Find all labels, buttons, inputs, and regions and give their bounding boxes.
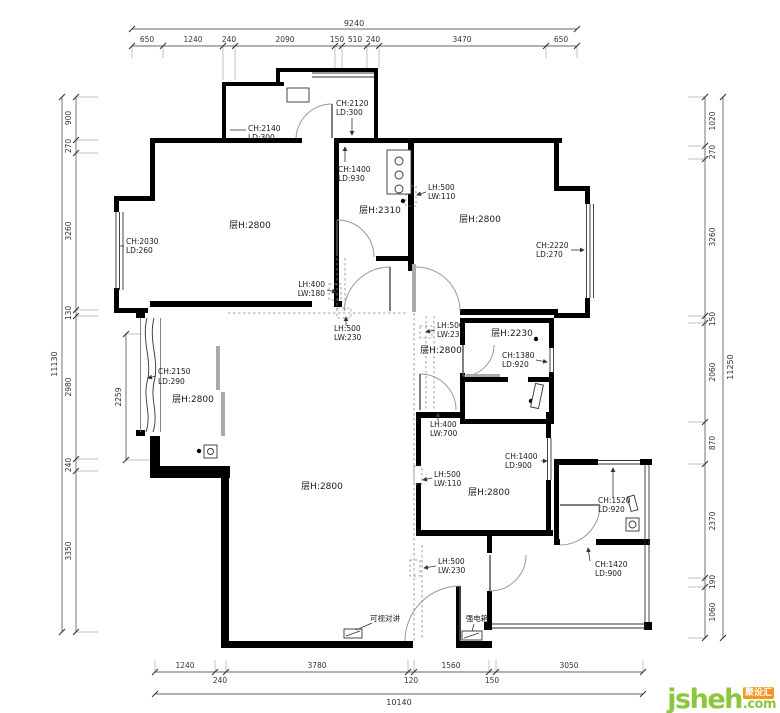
dash-opening [414,466,422,484]
dash-opening [410,560,420,576]
bay-window-wavy [152,318,155,432]
leader [356,623,372,630]
wall [460,318,554,323]
dim: 190 [708,575,717,590]
balcony-window-bottom [492,624,646,628]
sliding-door-panel [216,346,220,390]
wall [416,412,464,418]
room-label-kitchen: 层H:2310 [359,205,401,216]
dim: 3260 [708,227,717,246]
label-line: CH:2140 [248,124,281,133]
label-storage-win: CH:1520 LD:920 [598,496,631,514]
kitchen-door-arc [337,220,374,257]
bath-window [550,348,554,374]
label-line: LD:900 [505,461,532,470]
label-line: LH:400 [298,280,325,289]
wall [484,622,492,630]
wall [276,68,280,86]
wall [221,641,413,648]
label-line: LW:180 [298,289,326,298]
wall [334,301,342,307]
wall [546,412,551,438]
wall [221,472,229,648]
label-line: LW:110 [428,192,456,201]
wall [554,539,560,545]
entry-door-arc [405,586,460,641]
walls [114,68,652,648]
device-label-intercom: 可视对讲 [370,613,400,623]
label-bath-win: CH:1380 LD:920 [502,351,535,369]
label-line: CH:1380 [502,351,535,360]
wall [554,138,559,190]
label-left-win: CH:2030 LD:260 [126,237,159,255]
wall [276,68,378,72]
label-tr-niche: LH:500 LW:110 [428,183,456,201]
label-porch-win: CH:2120 LD:300 [336,99,369,117]
wall [150,466,230,478]
dim: 3350 [64,541,73,560]
dim-total-bottom: 10140 [386,698,411,707]
label-br-niche: LH:500 LW:110 [434,470,462,488]
label-line: LH:400 [430,420,457,429]
room-labels: 层H:2800 层H:2310 层H:2800 层H:2800 层H:2230 … [172,205,533,498]
wall [222,82,284,86]
dim: 240 [222,35,237,44]
porch-cabinet [287,88,309,102]
dim: 1060 [708,602,717,621]
label-bath-opening: LH:400 LW:700 [430,420,458,438]
dim: 150 [485,676,500,685]
label-line: LD:930 [338,174,365,183]
label-line: CH:1420 [595,560,628,569]
label-hall-left: LH:500 LW:230 [334,324,362,342]
wall [460,377,508,382]
dim-total-top: 9240 [344,19,364,28]
wall [549,318,554,348]
wall [416,412,421,466]
dim: 1020 [708,111,717,130]
leader [536,360,547,362]
floor-plan-page: 9240 650 1240 240 2090 150 510 240 3470 … [0,0,780,713]
label-br-win: CH:1400 LD:900 [505,452,538,470]
dim: 240 [213,676,228,685]
room-label-bedroom-tl: 层H:2800 [229,220,271,231]
wall [487,536,492,553]
dining-door-arc [344,267,390,311]
wall [114,196,119,212]
leader [423,478,432,480]
wall [334,138,562,143]
windows [116,73,649,628]
wall [554,313,590,318]
balcony-door-arc [490,555,526,591]
wall [456,641,492,648]
left-window [116,212,123,290]
door-leaf-bar [412,264,416,312]
label-line: LH:500 [438,557,465,566]
ceiling-light [401,199,405,203]
leader [588,548,590,561]
bay-fixture [204,445,217,458]
label-entry-opening: LH:500 LW:230 [438,557,466,575]
label-line: LD:300 [336,108,363,117]
room-label-bedroom-br: 层H:2800 [468,487,510,498]
dim: 900 [64,111,73,126]
label-line: LD:300 [248,133,275,142]
wall [222,82,226,142]
dim: 1560 [441,661,460,670]
label-line: LW:230 [437,330,465,339]
dim: 870 [708,436,717,451]
ceiling-light [197,449,201,453]
porch-window [312,73,374,77]
dim: 510 [348,35,363,44]
wall [376,256,410,261]
dim: 1240 [183,35,202,44]
bedroom-br-door-arc [420,374,456,410]
device-label-power-box: 强电箱 [466,613,489,623]
watermark-logo: jsheh 聚设汇 .com [667,687,776,710]
label-line: LW:700 [430,429,458,438]
watermark-brand: jsheh [667,689,742,710]
dim: 120 [404,676,419,685]
bedroom-tr-door-arc [416,267,460,311]
room-label-bedroom-tr: 层H:2800 [459,214,501,225]
label-line: LW:230 [438,566,466,575]
dim: 650 [140,35,155,44]
label-line: LD:290 [158,377,185,386]
dim: 150 [708,312,717,327]
dimension-text: 9240 650 1240 240 2090 150 510 240 3470 … [50,19,735,707]
label-line: LD:260 [126,246,153,255]
dim: 150 [330,35,345,44]
wall [596,539,650,545]
label-kitchen-win: CH:1400 LD:930 [338,165,371,183]
leader [472,624,474,631]
label-line: LH:500 [434,470,461,479]
leader [424,566,436,568]
wall [554,186,590,191]
right-window [587,204,594,298]
dim: 2980 [64,377,73,396]
wall [150,138,155,200]
label-hall-right: LH:500 LW:230 [437,321,465,339]
dim: 2370 [708,511,717,530]
label-tl-opening: LH:400 LW:180 [298,280,326,298]
wall [460,309,558,315]
shelf [466,374,500,377]
wall [644,459,652,465]
storage-door-arc [560,505,600,545]
dimension-ticks [59,26,726,697]
label-balcony-door: CH:1420 LD:900 [595,560,628,578]
room-label-living: 层H:2800 [301,481,343,492]
label-line: CH:1400 [505,452,538,461]
room-label-dining: 层H:2800 [420,345,462,356]
dim: 3780 [307,661,326,670]
wall [416,530,553,536]
label-line: LW:110 [434,479,462,488]
label-bay-win: CH:2150 LD:290 [158,367,191,386]
wall [644,622,652,630]
bath-door-arc [463,345,494,376]
label-line: CH:2220 [536,241,569,250]
dim-bay: 2259 [114,387,123,406]
dashed-guides [228,186,434,640]
label-line: CH:2120 [336,99,369,108]
dim: 3470 [452,35,471,44]
label-line: CH:1400 [338,165,371,174]
fixtures [197,88,639,640]
wall [554,459,598,465]
label-line: LW:230 [334,333,362,342]
porch-door-arc [296,104,332,138]
dim: 130 [64,306,73,321]
label-line: LH:500 [334,324,361,333]
storage-window [598,461,640,465]
label-line: CH:2030 [126,237,159,246]
dim-total-left: 11130 [50,351,59,376]
washer [626,518,639,531]
wall [554,459,559,545]
label-line: LH:500 [428,183,455,192]
floor-plan-drawing: 9240 650 1240 240 2090 150 510 240 3470 … [0,0,780,713]
dim: 650 [554,35,569,44]
room-label-bay: 层H:2800 [172,394,214,405]
dim: 270 [708,145,717,160]
wall [546,480,551,536]
label-line: LD:270 [536,250,563,259]
label-line: CH:1520 [598,496,631,505]
dim: 2060 [708,362,717,381]
annotation-leaders [119,118,613,631]
bath-heater [531,383,544,408]
dim: 240 [366,35,381,44]
room-label-bath: 层H:2230 [491,328,533,339]
dim: 3050 [559,661,578,670]
dim: 1240 [175,661,194,670]
wall [374,68,378,142]
dim: 240 [64,458,73,473]
label-line: LD:920 [598,505,625,514]
dim: 270 [64,139,73,154]
leader [417,192,426,195]
label-line: LD:920 [502,360,529,369]
label-line: LH:500 [437,321,464,330]
ceiling-light [534,337,538,341]
dimension-lines [59,26,726,697]
watermark-right-column: 聚设汇 .com [743,687,776,710]
br-window [548,438,552,480]
wall [136,312,145,318]
wall [585,186,590,204]
wall [150,301,312,307]
dim: 2090 [275,35,294,44]
label-line: CH:2150 [158,367,191,376]
dim: 3260 [64,221,73,240]
sliding-door-panel [221,392,225,436]
wall [114,196,155,201]
wall [416,483,421,536]
watermark-tld: .com [743,699,776,710]
wall [460,419,554,424]
bay-window-wavy [145,318,148,432]
wall [150,138,302,143]
label-line: LD:900 [595,569,622,578]
label-right-win: CH:2220 LD:270 [536,241,569,259]
dim-total-right: 11250 [726,354,735,379]
